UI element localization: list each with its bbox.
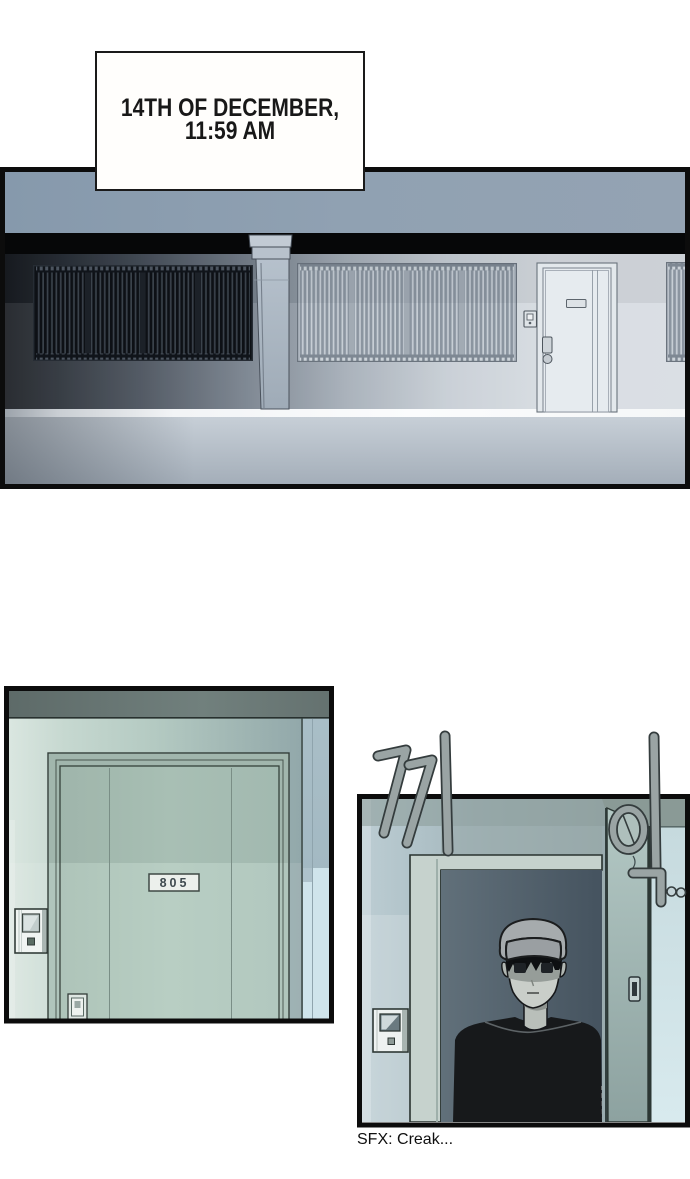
svg-text:805: 805 [160,876,190,890]
